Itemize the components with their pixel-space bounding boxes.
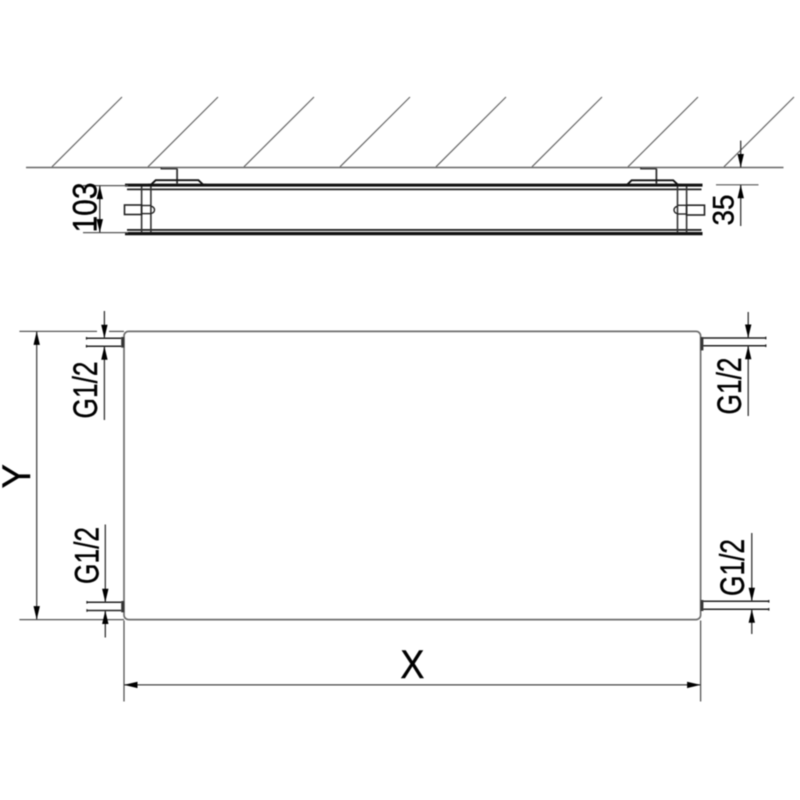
svg-text:G1/2: G1/2: [714, 539, 752, 596]
svg-text:G1/2: G1/2: [67, 362, 105, 419]
svg-text:35: 35: [708, 195, 741, 226]
svg-text:X: X: [400, 643, 424, 687]
svg-text:103: 103: [67, 183, 105, 233]
svg-text:G1/2: G1/2: [711, 358, 749, 415]
svg-text:G1/2: G1/2: [68, 527, 106, 584]
svg-text:Y: Y: [0, 464, 39, 489]
